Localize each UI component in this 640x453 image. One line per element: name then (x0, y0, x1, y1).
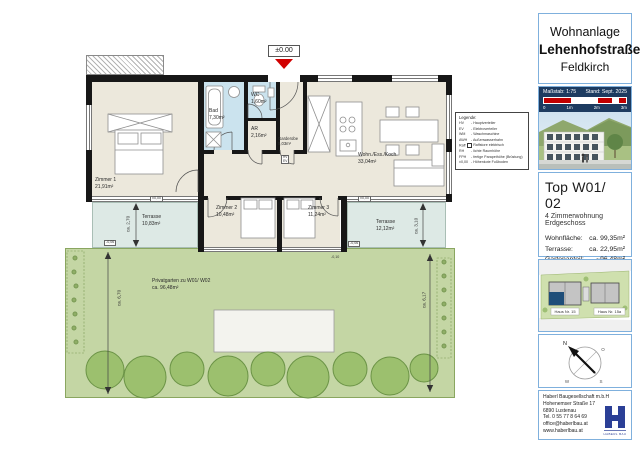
window (92, 196, 198, 202)
legend-row: ±0,00- Höhenkote Fußboden (459, 160, 525, 166)
kote-terrace-right-bottom: -0,06 (348, 241, 360, 247)
dim-garden-right: ca. 6,17 (422, 292, 427, 308)
garden (65, 248, 455, 398)
window (446, 152, 452, 194)
company-name: Haberl Baugesellschaft m.b.H (543, 394, 627, 401)
photo-building (544, 132, 604, 163)
unit-subtitle2: Erdgeschoss (545, 220, 625, 227)
dim-terrace-right: ca. 3,10 (414, 218, 419, 234)
wall (277, 196, 282, 252)
unit-subtitle1: 4 Zimmerwohnung (545, 213, 625, 220)
window (392, 75, 438, 82)
window (204, 247, 277, 252)
wall (244, 82, 248, 150)
window (86, 105, 92, 150)
siteplan-garage (583, 287, 589, 301)
svg-text:Haus Nr. 15a: Haus Nr. 15a (598, 309, 622, 314)
room-label-terrasse-right: Terrasse12,12m² (376, 219, 395, 232)
wall (248, 118, 276, 121)
project-title-line2: Lehenhofstraße (539, 42, 631, 57)
dim-terrace-left: ca. 2,70 (126, 216, 131, 232)
compass-n: N (563, 341, 567, 347)
compass-w: W (565, 379, 570, 384)
wall (262, 150, 280, 154)
unit-title: Top W01/ 02 (545, 179, 625, 211)
legend-box: Legende: HV- Hauptverteiler EV- Elektrov… (455, 112, 529, 170)
garden-label: Privatgarten zu W01/ W02ca. 96,48m² (152, 278, 210, 291)
sidebar-company-box: Haberl Baugesellschaft m.b.H Hohenemser … (538, 390, 632, 440)
photo-sidewalk (539, 160, 631, 164)
terrace-right (347, 202, 446, 248)
wall (226, 196, 322, 200)
kote-terrace-left-bottom: -0,06 (104, 240, 116, 246)
compass-s: S (599, 379, 602, 384)
room-label-ar: AR2,16m² (251, 126, 267, 139)
balcony-overhang-hatch (86, 55, 164, 75)
wall (198, 150, 214, 154)
wall (198, 196, 204, 252)
room-label-garderobe: Garderobe5,03m² (278, 136, 298, 147)
scale-strip: Maßstab: 1:75 Stand: Sept. 2025 01m 2m3m (539, 87, 631, 112)
sidebar-title-box: Wohnanlage Lehenhofstraße Feldkirch (538, 13, 632, 84)
unit-row-terrasse: Terrasse:ca. 22,95m² (545, 245, 625, 256)
wall (341, 196, 347, 252)
unit-row-wohnflaeche: Wohnfläche:ca. 99,35m² (545, 234, 625, 245)
room-zimmer3 (282, 196, 340, 247)
legend-title: Legende: (459, 115, 525, 120)
svg-text:Haus Nr. 15: Haus Nr. 15 (554, 309, 576, 314)
sidebar-compass-box: N O S W (538, 334, 632, 388)
wall (86, 75, 268, 82)
room-label-bad: Bad7,30m² (209, 108, 225, 121)
building-photo (539, 112, 631, 170)
haberl-logo: HABERL BAU (602, 404, 628, 436)
wall (294, 150, 307, 154)
room-label-wc: WC1,60m² (251, 92, 267, 105)
dim-garden-left: ca. 6,70 (117, 290, 122, 306)
floorplan-sheet: ±0.00 Zimmer 121,91m² Bad7,30m² WC1,60m²… (0, 0, 640, 453)
siteplan-building-left (549, 282, 581, 305)
project-title-line3: Feldkirch (539, 60, 631, 74)
kote-garden: -0,10 (331, 255, 339, 259)
window (282, 247, 341, 252)
wall (303, 82, 307, 150)
equip-box: HV EV (281, 155, 289, 164)
scale-bar (543, 97, 627, 104)
date-label: Stand: Sept. 2025 (585, 89, 627, 95)
room-zimmer2 (204, 196, 277, 247)
scale-label: Maßstab: 1:75 (543, 89, 576, 95)
kote-terrace-left-top: ±0,00 (150, 196, 163, 202)
window (446, 95, 452, 139)
room-label-zimmer3: Zimmer 311,24m² (308, 205, 329, 218)
scale-ticks: 01m 2m3m (543, 105, 627, 110)
level-marker-triangle (275, 59, 293, 69)
siteplan-road-bottom (539, 318, 631, 331)
compass-o: O (601, 347, 605, 352)
room-label-zimmer2: Zimmer 210,48m² (216, 205, 237, 218)
level-marker: ±0.00 (268, 45, 300, 57)
project-title-line1: Wohnanlage (539, 25, 631, 39)
haberl-logo-text: HABERL BAU (604, 432, 627, 436)
room-label-wohnen: Wohn./Ess./Koch.33,04m² (358, 152, 398, 165)
siteplan-building-right (591, 283, 619, 303)
sidebar-unit-box: Top W01/ 02 4 Zimmerwohnung Erdgeschoss … (538, 172, 632, 257)
window (318, 75, 352, 82)
wall (232, 150, 248, 154)
compass: N O S W (539, 335, 631, 387)
wall (198, 82, 204, 196)
room-label-zimmer1: Zimmer 121,91m² (95, 177, 116, 190)
room-label-terrasse-left: Terrasse10,83m² (142, 214, 161, 227)
sidebar-scale-photo-box: Maßstab: 1:75 Stand: Sept. 2025 01m 2m3m (538, 86, 632, 170)
room-wohnen (307, 82, 446, 196)
kote-terrace-right-top: ±0,00 (358, 196, 371, 202)
site-plan: Haus Nr. 15 Haus Nr. 15a (539, 260, 631, 331)
sidebar-siteplan-box: Haus Nr. 15 Haus Nr. 15a (538, 259, 632, 332)
